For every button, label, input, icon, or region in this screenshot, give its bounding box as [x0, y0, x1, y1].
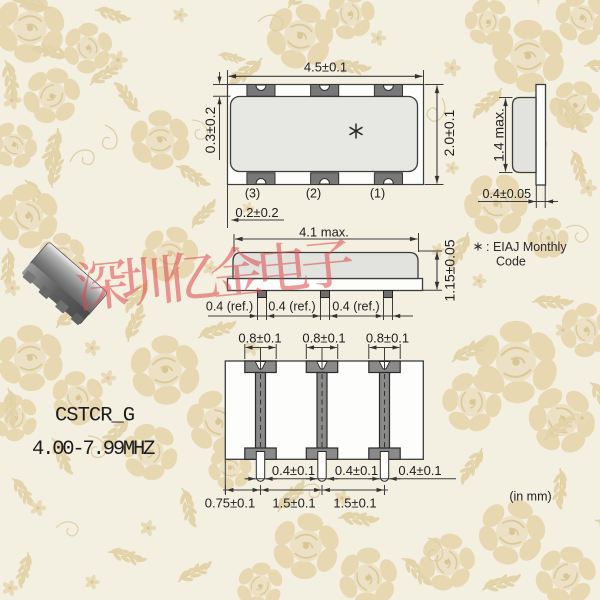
svg-text:0.8±0.1: 0.8±0.1 [302, 331, 345, 346]
svg-text:0.4±0.05: 0.4±0.05 [483, 187, 532, 201]
svg-text:4.1 max.: 4.1 max. [299, 225, 349, 240]
svg-text:CSTCR_G: CSTCR_G [55, 405, 135, 428]
svg-text:1.5±0.1: 1.5±0.1 [272, 496, 315, 511]
svg-text:(2): (2) [306, 187, 321, 201]
svg-text:1.5±0.1: 1.5±0.1 [333, 496, 376, 511]
svg-text:0.4 (ref.): 0.4 (ref.) [332, 300, 379, 314]
svg-text:2.0±0.1: 2.0±0.1 [441, 109, 457, 156]
svg-text:(in mm): (in mm) [509, 490, 551, 504]
svg-text:0.4±0.1: 0.4±0.1 [398, 463, 441, 478]
svg-text:0.2±0.2: 0.2±0.2 [235, 205, 278, 220]
svg-text:0.8±0.1: 0.8±0.1 [238, 331, 281, 346]
svg-text:0.4 (ref.): 0.4 (ref.) [268, 300, 315, 314]
svg-text:1.15±0.05: 1.15±0.05 [442, 239, 458, 301]
svg-text:0.4±0.1: 0.4±0.1 [335, 463, 378, 478]
svg-text:1.4 max.: 1.4 max. [491, 108, 507, 162]
svg-text:(3): (3) [245, 187, 260, 201]
svg-text:Code: Code [496, 255, 526, 269]
svg-text:0.8±0.1: 0.8±0.1 [366, 331, 409, 346]
svg-text:0.3±0.2: 0.3±0.2 [202, 106, 218, 153]
svg-text:: EIAJ Monthly: : EIAJ Monthly [486, 240, 567, 254]
svg-text:(1): (1) [370, 187, 385, 201]
svg-text:0.4±0.1: 0.4±0.1 [272, 463, 315, 478]
svg-text:4.5±0.1: 4.5±0.1 [304, 60, 347, 75]
svg-text:4.00-7.99MHZ: 4.00-7.99MHZ [32, 438, 155, 461]
svg-text:0.4 (ref.): 0.4 (ref.) [206, 300, 253, 314]
svg-text:0.75±0.1: 0.75±0.1 [205, 496, 256, 511]
